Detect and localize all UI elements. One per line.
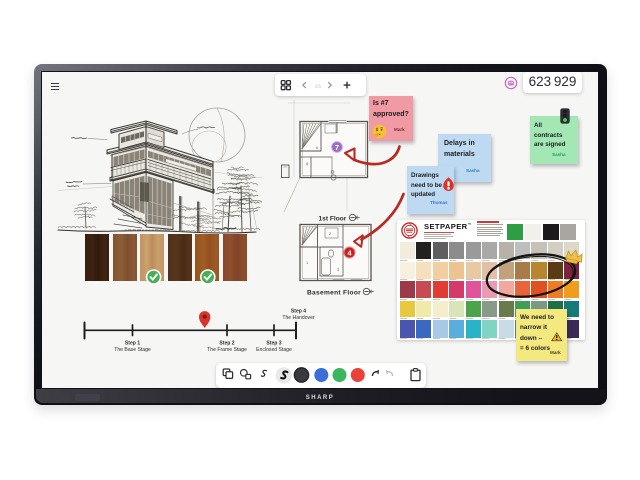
svg-text:Step 3: Step 3 <box>266 341 281 347</box>
svg-text:Step 4: Step 4 <box>291 309 306 315</box>
svg-text:Step 2: Step 2 <box>219 341 234 347</box>
svg-text:The Handover: The Handover <box>282 315 315 321</box>
svg-text:7: 7 <box>335 143 339 152</box>
svg-text:Enclosed Stage: Enclosed Stage <box>256 347 292 353</box>
svg-text:1st Floor: 1st Floor <box>319 216 347 223</box>
svg-text:Basement Floor: Basement Floor <box>307 290 361 297</box>
svg-text:The Base Stage: The Base Stage <box>114 347 151 353</box>
svg-text:The Frame Stage: The Frame Stage <box>207 347 247 353</box>
svg-text:Step 1: Step 1 <box>125 341 140 347</box>
